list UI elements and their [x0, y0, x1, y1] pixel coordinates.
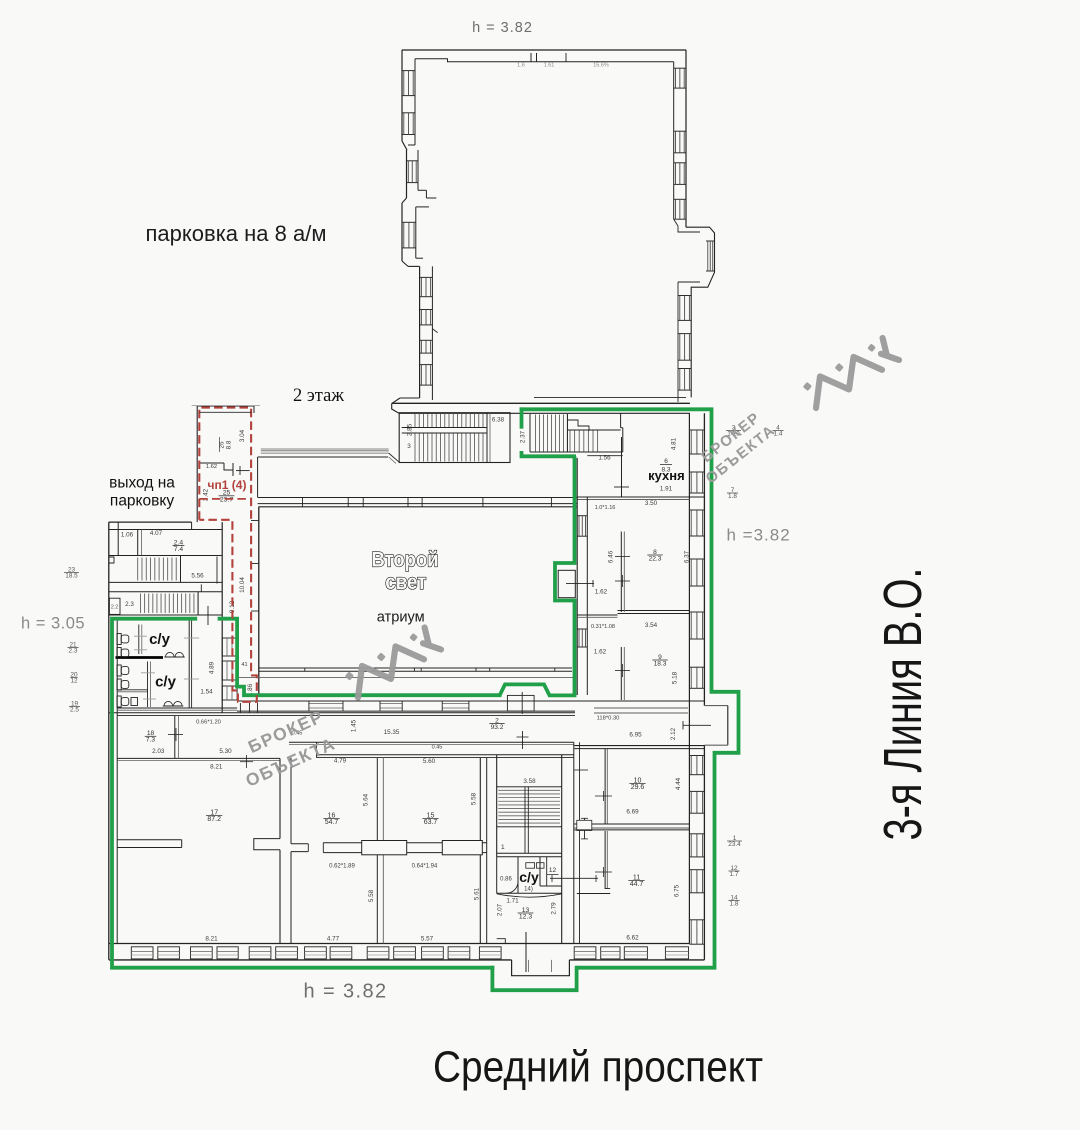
svg-text:1.0*1.16: 1.0*1.16 [595, 505, 616, 511]
svg-text:7.4: 7.4 [174, 546, 184, 553]
svg-text:свет: свет [385, 571, 426, 594]
svg-text:выход на: выход на [109, 475, 175, 492]
svg-text:3: 3 [407, 443, 411, 450]
svg-text:0.62*1.89: 0.62*1.89 [329, 864, 355, 870]
svg-text:4.81: 4.81 [670, 437, 677, 450]
svg-text:5.64: 5.64 [363, 793, 370, 806]
svg-text:1.62: 1.62 [595, 589, 608, 596]
svg-text:3.04: 3.04 [239, 429, 246, 442]
svg-text:8.21: 8.21 [205, 936, 218, 943]
svg-text:5.18: 5.18 [672, 671, 679, 684]
svg-text:1.91: 1.91 [660, 486, 673, 493]
svg-text:1.8: 1.8 [730, 901, 739, 908]
svg-text:14): 14) [524, 887, 533, 893]
svg-text:2.07: 2.07 [497, 903, 504, 916]
svg-text:2.5: 2.5 [70, 707, 79, 714]
svg-text:3.58: 3.58 [523, 778, 536, 785]
svg-text:3-я Линия В.О.: 3-я Линия В.О. [873, 568, 933, 841]
svg-text:2.12: 2.12 [670, 727, 677, 740]
svg-text:93.2: 93.2 [491, 724, 504, 731]
svg-text:5.56: 5.56 [191, 573, 204, 580]
svg-text:1.45: 1.45 [350, 719, 357, 732]
svg-text:4.89: 4.89 [209, 661, 216, 674]
svg-text:3.50: 3.50 [645, 500, 658, 507]
svg-text:15.6%: 15.6% [593, 63, 609, 69]
svg-text:4.77: 4.77 [327, 936, 340, 943]
svg-text:63.7: 63.7 [424, 819, 438, 826]
svg-text:2.2: 2.2 [111, 605, 118, 611]
svg-text:4.44: 4.44 [675, 777, 682, 790]
svg-text:Второй: Второй [372, 549, 439, 572]
svg-text:2.03: 2.03 [152, 748, 165, 755]
svg-text:6.38: 6.38 [492, 417, 505, 424]
svg-text:0.31*1.08: 0.31*1.08 [591, 624, 615, 630]
svg-text:2.85: 2.85 [406, 423, 413, 436]
svg-text:8.21: 8.21 [210, 763, 223, 770]
svg-text:с/у: с/у [155, 674, 177, 691]
svg-text:23.4: 23.4 [728, 841, 741, 848]
svg-text:парковка на 8 а/м: парковка на 8 а/м [146, 221, 327, 246]
svg-text:3.54: 3.54 [645, 622, 658, 629]
svg-text:5.61: 5.61 [474, 887, 481, 900]
svg-text:6.75: 6.75 [674, 884, 681, 897]
svg-text:0.64*1.94: 0.64*1.94 [412, 864, 438, 870]
svg-text:1: 1 [501, 844, 505, 851]
svg-text:1.56: 1.56 [598, 455, 611, 462]
svg-text:12.3: 12.3 [519, 914, 532, 921]
svg-text:1.62: 1.62 [594, 649, 607, 656]
svg-text:парковку: парковку [110, 493, 174, 510]
svg-text:1.7: 1.7 [730, 871, 739, 878]
svg-text:1.61: 1.61 [544, 63, 555, 69]
svg-text:6.46: 6.46 [607, 550, 614, 563]
svg-text:1.54: 1.54 [200, 689, 213, 696]
svg-text:кухня: кухня [648, 468, 685, 483]
svg-text:5.57: 5.57 [421, 936, 434, 943]
svg-text:2.79: 2.79 [551, 902, 558, 915]
svg-text:с/у: с/у [519, 869, 539, 885]
svg-text:1.06: 1.06 [121, 532, 134, 539]
svg-text:6: 6 [664, 458, 668, 465]
svg-text:Средний проспект: Средний проспект [433, 1043, 763, 1092]
svg-text:h = 3.82: h = 3.82 [472, 20, 533, 36]
svg-text:44.7: 44.7 [630, 881, 644, 888]
svg-text:118*0.30: 118*0.30 [597, 716, 620, 722]
svg-text:2.37: 2.37 [520, 430, 527, 443]
svg-text:41: 41 [241, 662, 247, 668]
svg-text:0.86: 0.86 [500, 877, 512, 883]
svg-text:12: 12 [549, 867, 557, 874]
svg-text:12: 12 [70, 678, 78, 685]
svg-text:5.30: 5.30 [219, 748, 232, 755]
svg-text:22.3: 22.3 [649, 555, 662, 562]
svg-text:1.6: 1.6 [517, 63, 525, 69]
svg-text:h = 3.82: h = 3.82 [303, 981, 387, 1003]
svg-text:7.3: 7.3 [146, 737, 155, 744]
svg-text:6.62: 6.62 [626, 935, 639, 942]
svg-text:2.3: 2.3 [125, 601, 134, 608]
svg-text:54.7: 54.7 [325, 819, 339, 826]
svg-text:0.66*1.20: 0.66*1.20 [196, 720, 221, 726]
svg-text:5.60: 5.60 [423, 758, 436, 765]
svg-text:6.69: 6.69 [626, 809, 639, 816]
svg-text:5.58: 5.58 [368, 889, 375, 902]
svg-text:6.37: 6.37 [683, 550, 690, 563]
svg-text:15.35: 15.35 [384, 729, 400, 736]
svg-text:с/у: с/у [149, 631, 171, 648]
svg-text:10.04: 10.04 [239, 577, 246, 593]
svg-text:атриум: атриум [377, 609, 425, 626]
svg-text:2.3: 2.3 [69, 648, 78, 655]
svg-text:29.6: 29.6 [631, 784, 645, 791]
svg-text:h =3.82: h =3.82 [727, 526, 791, 545]
svg-text:0.45: 0.45 [432, 745, 443, 751]
svg-text:18.3: 18.3 [654, 660, 667, 667]
svg-text:6.95: 6.95 [629, 732, 642, 739]
svg-text:1.62: 1.62 [206, 464, 217, 470]
svg-text:5.58: 5.58 [471, 792, 478, 805]
svg-text:18.5: 18.5 [65, 573, 78, 580]
svg-text:23.7: 23.7 [220, 496, 233, 503]
svg-text:4.07: 4.07 [150, 530, 163, 537]
svg-text:1.8: 1.8 [728, 493, 737, 500]
svg-text:h = 3.05: h = 3.05 [21, 615, 85, 633]
svg-text:87.2: 87.2 [207, 816, 221, 823]
svg-text:1.71: 1.71 [506, 898, 519, 905]
svg-text:8.8: 8.8 [226, 440, 233, 449]
svg-text:2 этаж: 2 этаж [293, 386, 344, 406]
svg-text:4.79: 4.79 [334, 758, 347, 765]
